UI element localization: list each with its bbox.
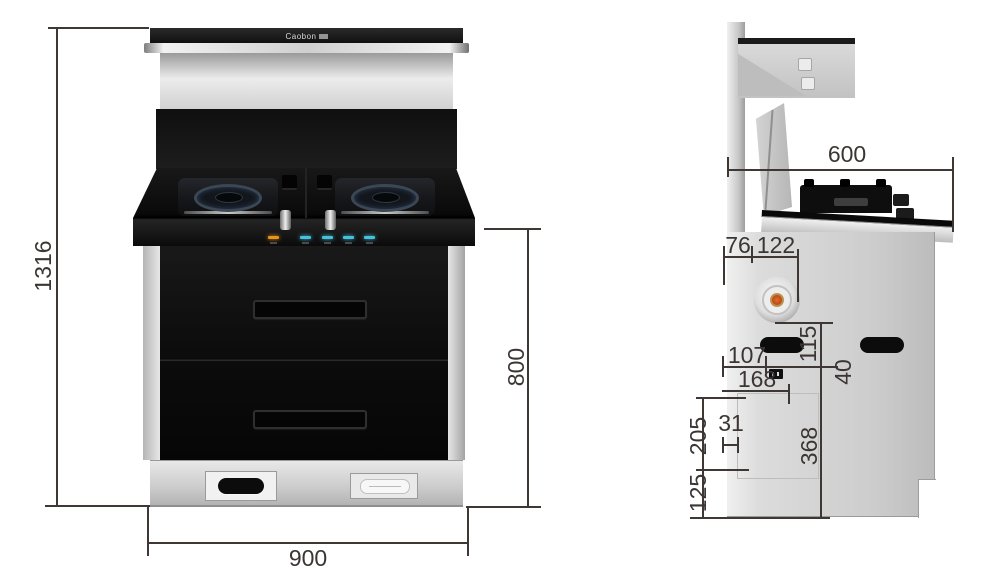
dim-tick	[696, 397, 746, 399]
cooktop-center-seam	[305, 168, 307, 218]
dim-tick	[484, 228, 541, 230]
left-burner	[178, 178, 278, 216]
steel-backsplash	[160, 53, 453, 110]
dim-label-inlet-offset: 107	[728, 343, 766, 367]
hood-trim-bar	[144, 43, 469, 53]
air-intake-vent	[205, 471, 277, 501]
dim-tick	[788, 384, 790, 404]
indicator-light	[300, 236, 311, 239]
dim-tick	[775, 322, 833, 324]
dim-tick	[952, 157, 954, 232]
flue-outlet	[754, 277, 800, 323]
mounting-cutout	[798, 58, 812, 71]
vent-opening	[218, 478, 264, 494]
dim-label-panel-height: 368	[797, 427, 821, 465]
nameplate	[350, 473, 418, 499]
brand-logo: Caobon	[285, 32, 327, 41]
upper-drawer-handle	[253, 300, 367, 319]
dim-label-width: 900	[289, 546, 327, 570]
dim-tick	[751, 246, 753, 263]
dim-tick	[466, 506, 541, 508]
glass-backsplash	[156, 109, 457, 169]
indicator-caption	[270, 242, 277, 244]
dim-tick	[45, 505, 150, 507]
pan-support	[876, 179, 886, 187]
dim-tick	[467, 506, 469, 556]
dim-label-flue-offset: 76	[725, 233, 751, 257]
technical-drawing: Caobon	[0, 0, 1000, 576]
dim-line-total-height	[56, 28, 58, 507]
dim-tick	[722, 444, 739, 446]
dim-tick	[690, 517, 830, 519]
dim-tick	[48, 27, 149, 29]
pan-support	[840, 179, 850, 187]
dim-tick	[696, 469, 749, 471]
indicator-light	[322, 236, 333, 239]
dim-tick	[727, 157, 729, 177]
indicator-caption	[366, 242, 373, 244]
indicator-light-power	[268, 236, 279, 239]
knob-profile	[893, 194, 909, 206]
drawer-divider	[160, 358, 448, 361]
brand-logo-text: Caobon	[285, 32, 316, 41]
dim-label-flue-drop: 115	[796, 326, 820, 363]
mounting-cutout	[801, 77, 815, 90]
kick-recess-notch	[918, 479, 936, 518]
flue-center-cap	[770, 293, 784, 307]
right-burner	[335, 178, 435, 216]
indicator-caption	[324, 242, 331, 244]
dim-label-total-height: 1316	[31, 240, 55, 291]
dim-tick	[722, 356, 724, 377]
burner-hub	[372, 192, 400, 203]
burner-profile	[800, 185, 892, 213]
dim-label-depth: 600	[828, 142, 866, 166]
hood-top-strip	[738, 38, 855, 44]
indicator-caption	[345, 242, 352, 244]
dim-tick	[147, 506, 149, 556]
indicator-light	[343, 236, 354, 239]
nameplate-emboss	[360, 479, 410, 494]
dim-line-depth	[727, 169, 954, 171]
dim-line-width	[148, 542, 469, 544]
burner-vent-slot	[834, 198, 868, 206]
dim-label-bottom-clearance: 125	[686, 474, 710, 512]
burner-hub	[215, 192, 243, 203]
hood-underside-fold	[738, 44, 855, 98]
pan-support	[804, 179, 814, 187]
logo-cjk-mark	[319, 34, 328, 39]
dim-label-panel-top: 205	[686, 417, 710, 455]
kick-panel	[150, 460, 463, 506]
cabinet	[143, 246, 465, 460]
dim-label-cabinet-height: 800	[504, 348, 528, 386]
cooktop	[133, 168, 475, 246]
indicator-caption	[302, 242, 309, 244]
dim-tick	[797, 249, 799, 302]
dim-label-hook-width: 31	[718, 411, 744, 435]
dim-label-inlet-drop: 40	[831, 359, 855, 385]
control-knob-right	[325, 210, 336, 230]
handle-recess-right	[860, 337, 904, 353]
hood-header-bar: Caobon	[150, 28, 463, 44]
control-knob-left	[280, 210, 291, 230]
base-shadow-line	[150, 505, 463, 507]
lower-drawer-handle	[253, 410, 367, 429]
smoke-outlet-cap-left	[282, 175, 297, 190]
indicator-light	[364, 236, 375, 239]
dim-label-flue-span: 122	[757, 233, 795, 257]
drawer-stack	[160, 246, 448, 460]
dim-label-socket-offset: 168	[738, 367, 776, 391]
smoke-outlet-cap-right	[317, 175, 332, 190]
hood-head	[738, 38, 855, 98]
